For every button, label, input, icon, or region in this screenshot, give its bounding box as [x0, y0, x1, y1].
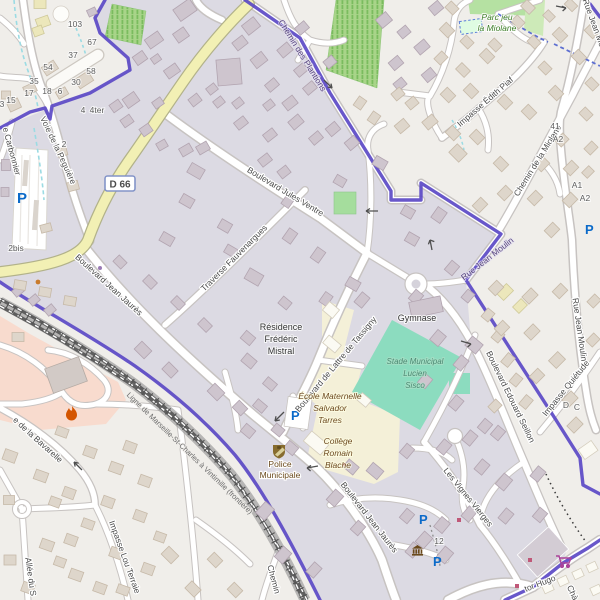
svg-text:D: D: [563, 400, 569, 410]
svg-text:Gymnase: Gymnase: [398, 313, 437, 323]
svg-text:4ter: 4ter: [90, 105, 105, 115]
svg-text:6: 6: [58, 86, 63, 96]
svg-text:35: 35: [29, 76, 39, 86]
svg-text:P: P: [585, 222, 594, 237]
svg-text:41: 41: [550, 121, 560, 131]
svg-text:C: C: [574, 402, 580, 412]
svg-text:P: P: [419, 512, 428, 527]
svg-text:58: 58: [86, 66, 96, 76]
svg-text:la Miolane: la Miolane: [478, 23, 517, 33]
svg-text:École Maternelle: École Maternelle: [298, 391, 362, 401]
svg-text:4: 4: [81, 105, 86, 115]
svg-text:2bis: 2bis: [8, 243, 24, 253]
svg-text:15: 15: [6, 95, 16, 105]
svg-text:P: P: [17, 190, 27, 207]
svg-text:3: 3: [0, 99, 5, 109]
svg-text:Collège: Collège: [324, 436, 353, 446]
svg-text:Blache: Blache: [325, 460, 351, 470]
svg-text:Frédéric: Frédéric: [264, 334, 298, 344]
svg-text:17: 17: [24, 88, 34, 98]
svg-text:54: 54: [43, 62, 53, 72]
svg-text:P: P: [433, 554, 442, 569]
svg-text:Résidence: Résidence: [260, 322, 303, 332]
svg-text:Sisco: Sisco: [405, 381, 425, 390]
svg-text:2: 2: [62, 139, 67, 149]
svg-text:D 66: D 66: [109, 180, 131, 191]
svg-text:103: 103: [68, 19, 82, 29]
svg-text:A1: A1: [572, 180, 583, 190]
svg-text:12: 12: [434, 536, 444, 546]
svg-text:Salvador: Salvador: [313, 403, 348, 413]
svg-text:Tarres: Tarres: [318, 415, 343, 425]
svg-text:A2: A2: [580, 193, 591, 203]
svg-text:A2: A2: [553, 134, 564, 144]
svg-text:Mistral: Mistral: [268, 346, 295, 356]
svg-text:67: 67: [87, 37, 97, 47]
svg-text:Lucien: Lucien: [403, 369, 427, 378]
svg-text:18: 18: [42, 86, 52, 96]
svg-text:Romain: Romain: [323, 448, 353, 458]
svg-text:Municipale: Municipale: [260, 470, 301, 480]
svg-text:Parc jeu: Parc jeu: [481, 12, 512, 22]
svg-text:Stade Municipal: Stade Municipal: [387, 357, 444, 366]
svg-text:37: 37: [68, 50, 78, 60]
svg-text:Police: Police: [268, 459, 291, 469]
svg-text:30: 30: [71, 77, 81, 87]
